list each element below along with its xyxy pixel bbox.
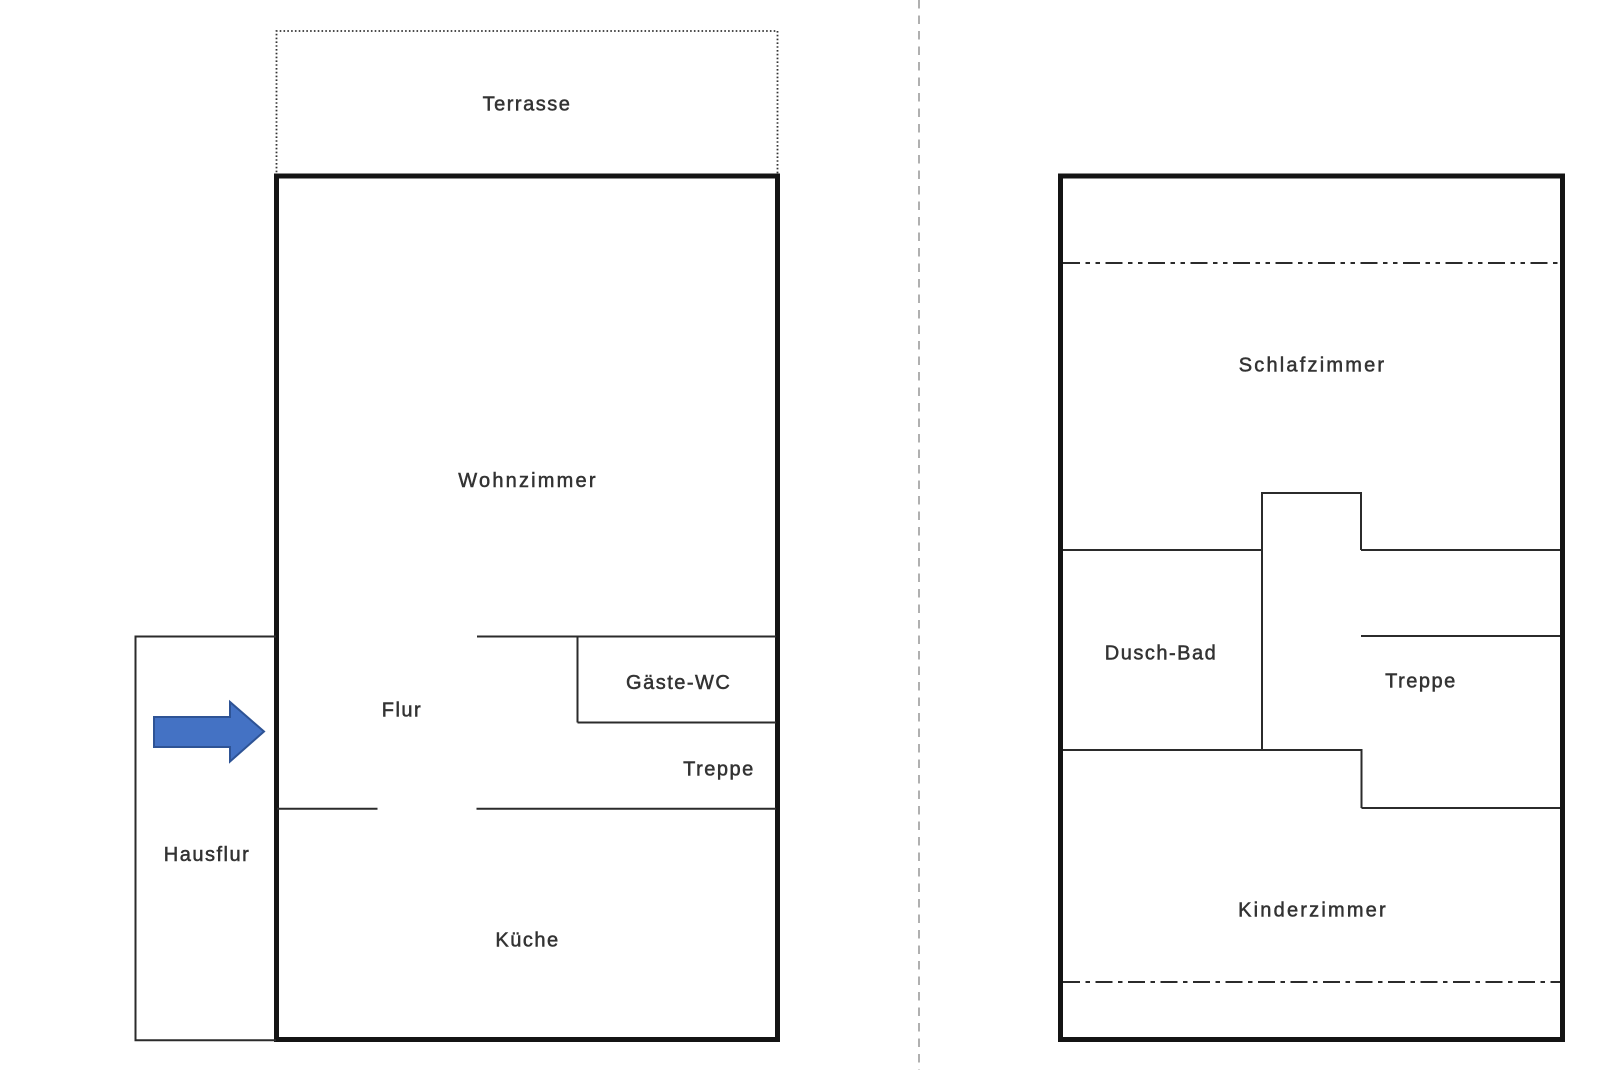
svg-text:Treppe: Treppe: [1385, 670, 1457, 692]
svg-text:Dusch-Bad: Dusch-Bad: [1105, 642, 1217, 664]
svg-text:Terrasse: Terrasse: [483, 94, 572, 116]
svg-text:Küche: Küche: [495, 929, 559, 951]
svg-text:Treppe: Treppe: [683, 759, 755, 781]
svg-text:Schlafzimmer: Schlafzimmer: [1239, 355, 1387, 377]
svg-text:Flur: Flur: [382, 700, 422, 722]
svg-text:Hausflur: Hausflur: [164, 844, 250, 866]
svg-text:Wohnzimmer: Wohnzimmer: [458, 470, 597, 492]
svg-text:Gäste-WC: Gäste-WC: [626, 672, 731, 694]
svg-text:Kinderzimmer: Kinderzimmer: [1238, 900, 1388, 922]
